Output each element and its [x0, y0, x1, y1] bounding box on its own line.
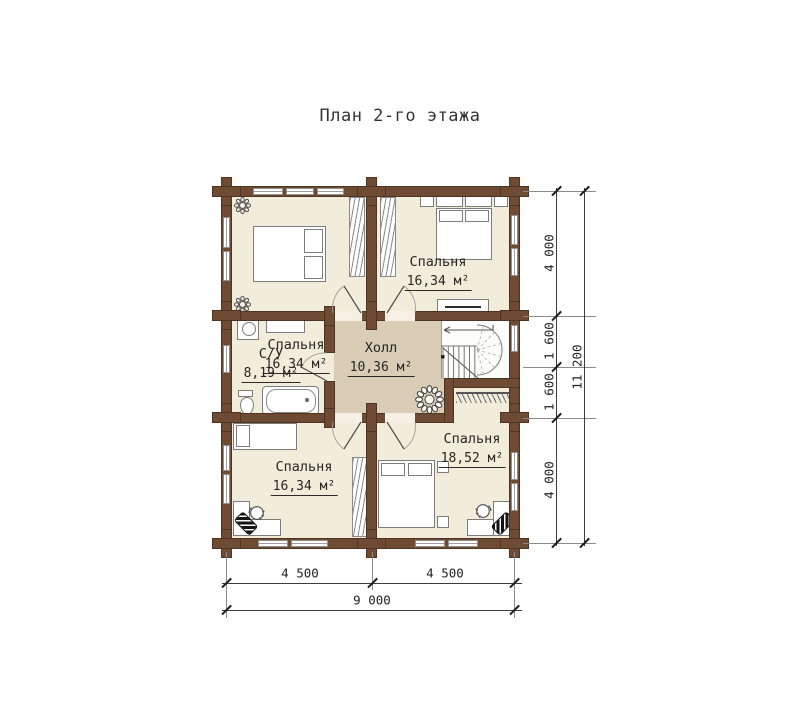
window [223, 251, 230, 281]
room-area: 16,34 м² [405, 274, 472, 291]
window [223, 345, 230, 373]
room-name: С/У [242, 347, 301, 362]
log-post [358, 539, 385, 548]
wardrobe-hatch [456, 392, 514, 403]
extension-line [523, 418, 596, 419]
nightstand [420, 195, 434, 207]
window [291, 540, 328, 547]
pillow [381, 463, 405, 476]
wardrobe-hatch [352, 457, 367, 537]
window [511, 248, 518, 276]
dimension-label: 1 600 [542, 322, 557, 360]
room-label-bedroom-bl: Спальня 16,34 м² [271, 460, 338, 496]
toilet-tank [238, 390, 253, 397]
door-bedroom-bl [331, 421, 363, 451]
window [415, 540, 445, 547]
wardrobe-hatch [380, 197, 396, 277]
pillow [236, 425, 250, 447]
room-label-bedroom-tr: Спальня 16,34 м² [405, 255, 472, 291]
room-label-bedroom-br: Спальня 18,52 м² [439, 432, 506, 468]
nightstand [494, 195, 508, 207]
sink [266, 318, 305, 333]
pillow [408, 463, 432, 476]
room-area: 18,52 м² [439, 451, 506, 468]
log-post [213, 539, 240, 548]
wall [367, 196, 376, 312]
log-post [358, 187, 385, 196]
window [223, 217, 230, 248]
wardrobe-hatch [349, 197, 365, 277]
pillow [304, 256, 323, 279]
room-name: Спальня [439, 432, 506, 447]
dimension-label-total: 11 200 [570, 344, 585, 389]
room-area: 8,19 м² [242, 366, 301, 383]
dimension-label-total: 9 000 [353, 593, 391, 608]
window [511, 325, 518, 352]
window [511, 215, 518, 245]
dimension-label: 4 000 [542, 234, 557, 272]
window [223, 445, 230, 471]
window [223, 474, 230, 504]
room-name: Спальня [405, 255, 472, 270]
door-bedroom-tl [331, 284, 363, 314]
window [317, 188, 344, 195]
page-title: План 2-го этажа [319, 106, 480, 126]
wall [445, 379, 453, 422]
floor-plan: План 2-го этажа [0, 0, 800, 722]
room-area: 16,34 м² [271, 479, 338, 496]
room-name: Спальня [271, 460, 338, 475]
log-post [213, 311, 240, 320]
stairs [441, 319, 510, 381]
door-bedroom-br [385, 421, 417, 451]
window [253, 188, 283, 195]
window [511, 452, 518, 480]
wall [367, 422, 376, 539]
log-post [213, 187, 240, 196]
extension-line [523, 316, 596, 317]
nightstand [437, 516, 449, 528]
pillow [304, 229, 323, 253]
bathtub-drain [305, 398, 309, 402]
dimension-label: 4 000 [542, 461, 557, 499]
pillow [439, 210, 463, 222]
ceiling-light-icon [234, 197, 251, 214]
plant-icon [415, 385, 444, 414]
window [258, 540, 288, 547]
office-chair-icon [473, 501, 493, 521]
window [286, 188, 314, 195]
dimension-line [222, 610, 522, 611]
log-post [213, 413, 240, 422]
log-post [367, 302, 376, 329]
room-label-bathroom: С/У 8,19 м² [242, 347, 301, 383]
wall [445, 379, 519, 387]
dimension-label: 4 500 [426, 566, 464, 581]
headboard-shelf [465, 195, 492, 207]
dimension-label: 1 600 [542, 373, 557, 411]
tv [445, 306, 481, 308]
window [511, 483, 518, 511]
log-post [367, 404, 376, 431]
headboard-shelf [436, 195, 463, 207]
room-name: Холл [348, 341, 415, 356]
pillow [465, 210, 489, 222]
room-label-hall: Холл 10,36 м² [348, 341, 415, 377]
window [448, 540, 478, 547]
extension-line [523, 367, 596, 368]
room-area: 10,36 м² [348, 360, 415, 377]
washing-machine-drum [242, 322, 256, 336]
dimension-label: 4 500 [281, 566, 319, 581]
